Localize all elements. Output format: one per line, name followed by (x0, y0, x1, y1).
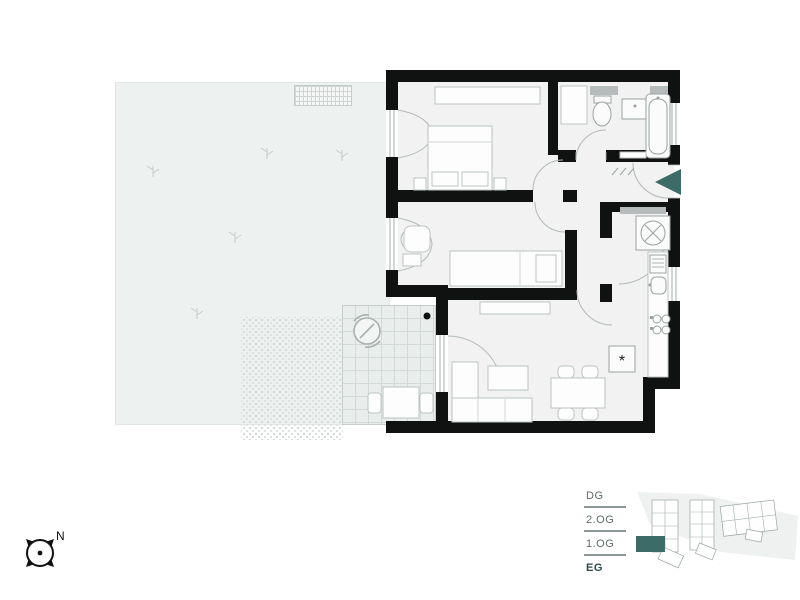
floor-divider (584, 554, 626, 556)
single-bed-icon (450, 251, 562, 286)
floor-item-1og[interactable]: 1.OG (584, 535, 630, 552)
plant-icon (147, 148, 348, 319)
floor-item-2og[interactable]: 2.OG (584, 511, 630, 528)
washing-machine-icon (636, 216, 670, 250)
parasol-icon (354, 315, 380, 347)
unit-highlight (636, 536, 665, 552)
floor-item-eg[interactable]: EG (584, 559, 630, 576)
washbasin-icon (622, 99, 648, 119)
toilet-icon (593, 96, 611, 126)
nightstand-icon (494, 178, 506, 190)
bathtub-icon (646, 94, 670, 158)
post-dot (424, 313, 431, 320)
coffee-table-icon (488, 366, 528, 390)
compass-icon: N (26, 529, 65, 567)
dishwasher-icon (650, 255, 666, 273)
sideboard-icon (480, 302, 550, 314)
terrace-furniture (354, 313, 433, 419)
fridge-icon: * (609, 346, 635, 372)
svg-text:*: * (619, 353, 625, 370)
site-map (636, 492, 798, 568)
armchair-icon (404, 226, 430, 252)
terrace-table-icon (368, 387, 433, 418)
floor-item-dg[interactable]: DG (584, 487, 630, 504)
floorplan-page: * (0, 0, 800, 600)
compass-north-label: N (56, 529, 65, 543)
floorplan-canvas: * (0, 0, 800, 600)
floor-divider (584, 530, 626, 532)
sink-icon (649, 277, 667, 294)
cabinet-icon (561, 86, 587, 124)
bathmat-icon (620, 152, 646, 158)
nightstand-icon (414, 178, 426, 190)
floor-selector: DG 2.OG 1.OG EG (584, 487, 630, 576)
site-building-2 (690, 500, 716, 560)
side-table-icon (403, 254, 421, 266)
floor-divider (584, 506, 626, 508)
